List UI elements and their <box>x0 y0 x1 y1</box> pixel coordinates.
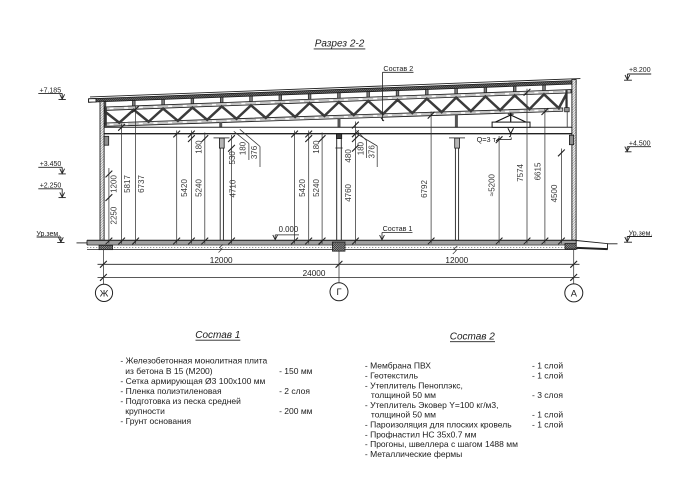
svg-text:5240: 5240 <box>195 179 204 197</box>
svg-text:- Пленка полиэтиленовая: - Пленка полиэтиленовая <box>120 386 222 396</box>
svg-text:2250: 2250 <box>109 206 118 224</box>
svg-text:180: 180 <box>356 141 365 155</box>
svg-text:- Подготовка из песка средней: - Подготовка из песка средней <box>120 396 241 406</box>
svg-text:- 1 слой: - 1 слой <box>532 410 563 420</box>
svg-text:- 1 слой: - 1 слой <box>532 370 563 380</box>
svg-text:4760: 4760 <box>344 183 353 201</box>
svg-text:крупности: крупности <box>125 406 165 416</box>
svg-text:5420: 5420 <box>298 179 307 197</box>
svg-text:1200: 1200 <box>109 175 118 193</box>
svg-text:6615: 6615 <box>534 162 543 180</box>
svg-text:- 1 слой: - 1 слой <box>532 420 563 430</box>
svg-text:- 2 слоя: - 2 слоя <box>279 386 310 396</box>
svg-text:Ж: Ж <box>100 288 109 298</box>
svg-text:- Прогоны, швеллера с шагом 14: - Прогоны, швеллера с шагом 1488 мм <box>365 439 518 449</box>
svg-text:530: 530 <box>228 151 237 165</box>
svg-text:А: А <box>571 288 578 298</box>
svg-text:4710: 4710 <box>228 179 237 197</box>
svg-text:Состав 2: Состав 2 <box>383 64 413 73</box>
svg-text:Состав 1: Состав 1 <box>383 224 413 233</box>
svg-text:480: 480 <box>344 149 353 163</box>
svg-text:Г: Г <box>336 287 341 297</box>
svg-text:- Утеплитель Эковер Y=100 кг/м: - Утеплитель Эковер Y=100 кг/м3, <box>365 400 499 410</box>
svg-text:- Металлические фермы: - Металлические фермы <box>365 449 462 459</box>
svg-text:толщиной 50 мм: толщиной 50 мм <box>371 410 436 420</box>
svg-text:4500: 4500 <box>550 184 559 202</box>
svg-text:Состав 2: Состав 2 <box>450 331 496 342</box>
svg-text:- 3 слоя: - 3 слоя <box>532 390 563 400</box>
svg-text:- Геотекстиль: - Геотекстиль <box>365 370 419 380</box>
svg-text:- 150 мм: - 150 мм <box>279 366 313 376</box>
svg-text:- Железобетонная монолитная п: - Железобетонная монолитная плита <box>120 356 267 366</box>
svg-text:- 200 мм: - 200 мм <box>279 406 313 416</box>
svg-text:12000: 12000 <box>210 256 233 265</box>
svg-text:5817: 5817 <box>123 175 132 193</box>
svg-text:7574: 7574 <box>516 163 525 181</box>
svg-text:Состав 1: Состав 1 <box>195 330 240 341</box>
svg-text:Q=3 т: Q=3 т <box>477 135 497 144</box>
svg-text:376: 376 <box>367 145 376 159</box>
svg-text:0.000: 0.000 <box>279 225 299 234</box>
svg-text:6792: 6792 <box>420 180 429 198</box>
svg-text:180: 180 <box>239 141 248 155</box>
svg-text:Разрез 2-2: Разрез 2-2 <box>315 39 365 50</box>
svg-text:5420: 5420 <box>180 179 189 197</box>
svg-text:- Сетка армирующая Ø3 100х100: - Сетка армирующая Ø3 100х100 мм <box>120 376 265 386</box>
svg-text:24000: 24000 <box>303 269 326 278</box>
svg-text:5240: 5240 <box>312 179 321 197</box>
svg-text:≈5200: ≈5200 <box>488 173 497 196</box>
svg-text:- Грунт основания: - Грунт основания <box>120 416 191 426</box>
svg-text:- Профнастил НС 35х0.7 мм: - Профнастил НС 35х0.7 мм <box>365 429 477 439</box>
svg-text:- Мембрана ПВХ: - Мембрана ПВХ <box>365 361 431 371</box>
svg-text:- Пароизоляция для плоских кро: - Пароизоляция для плоских кровель <box>365 420 512 430</box>
svg-text:12000: 12000 <box>445 256 468 265</box>
svg-text:из бетона В 15 (М200): из бетона В 15 (М200) <box>125 366 212 376</box>
svg-text:376: 376 <box>250 145 259 159</box>
svg-text:6737: 6737 <box>137 175 146 193</box>
svg-text:- 1 слой: - 1 слой <box>532 361 563 371</box>
svg-text:толщиной 50 мм: толщиной 50 мм <box>371 390 436 400</box>
svg-text:- Утеплитель Пеноплэкс,: - Утеплитель Пеноплэкс, <box>365 380 463 390</box>
svg-text:+8.200: +8.200 <box>629 67 651 74</box>
